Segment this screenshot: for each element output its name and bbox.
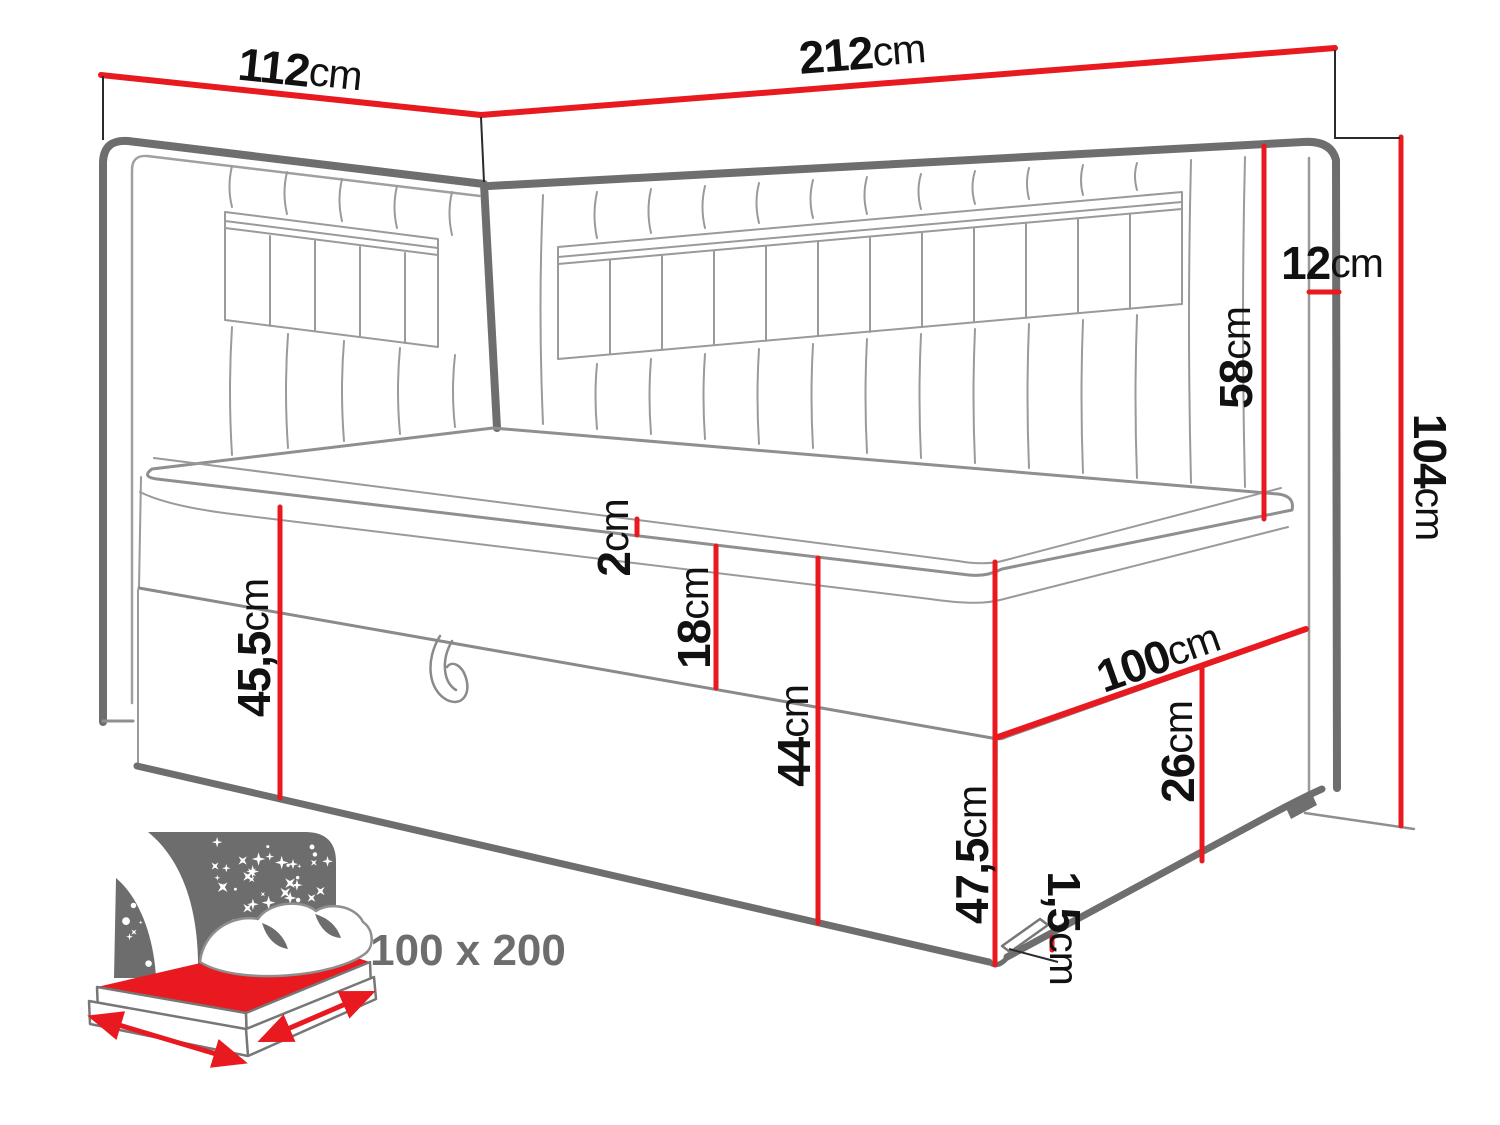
dim-label-mattress-height: 18cm xyxy=(668,567,720,669)
dim-label-left-base-height: 45,5cm xyxy=(228,579,280,717)
left-headboard-tufting xyxy=(230,166,456,455)
dimension-lines xyxy=(101,48,1401,965)
left-headboard-shelf xyxy=(225,212,438,347)
left-headboard-outline xyxy=(103,141,484,722)
back-headboard-outline xyxy=(489,142,1337,788)
sleeping-area-icon xyxy=(89,832,376,1062)
dim-label-front-corner-height: 47,5cm xyxy=(946,786,998,924)
dim-label-back-width: 212cm xyxy=(797,22,927,84)
dim-label-leg-height: 1,5cm xyxy=(1038,871,1090,985)
mattress-left-edge xyxy=(139,477,141,588)
dim-label-side-panel-height: 26cm xyxy=(1152,701,1204,803)
dim-label-front-panel-height: 44cm xyxy=(768,685,820,787)
dim-label-total-height: 104cm xyxy=(1404,414,1456,540)
dim-label-topper-height: 2cm xyxy=(588,499,640,576)
sleeping-area-label: 100 x 200 xyxy=(370,926,566,975)
dim-label-bed-width: 100cm xyxy=(1090,611,1227,702)
dim-label-headboard-above-bed: 58cm xyxy=(1210,307,1262,409)
bed-dimension-diagram: 112cm 212cm 12cm 58cm 104cm 2cm 18cm 45,… xyxy=(0,0,1500,1125)
headboard-corner-post xyxy=(484,184,497,428)
floor-line-right xyxy=(1305,813,1414,829)
back-headboard-shelf xyxy=(558,192,1182,359)
dim-label-headboard-thickness: 12cm xyxy=(1281,237,1383,289)
ext-line-corner xyxy=(481,117,484,182)
mattress-top-outline xyxy=(148,428,1293,575)
diagram-canvas: 112cm 212cm 12cm 58cm 104cm 2cm 18cm 45,… xyxy=(0,0,1500,1125)
extension-lines xyxy=(103,50,1400,962)
